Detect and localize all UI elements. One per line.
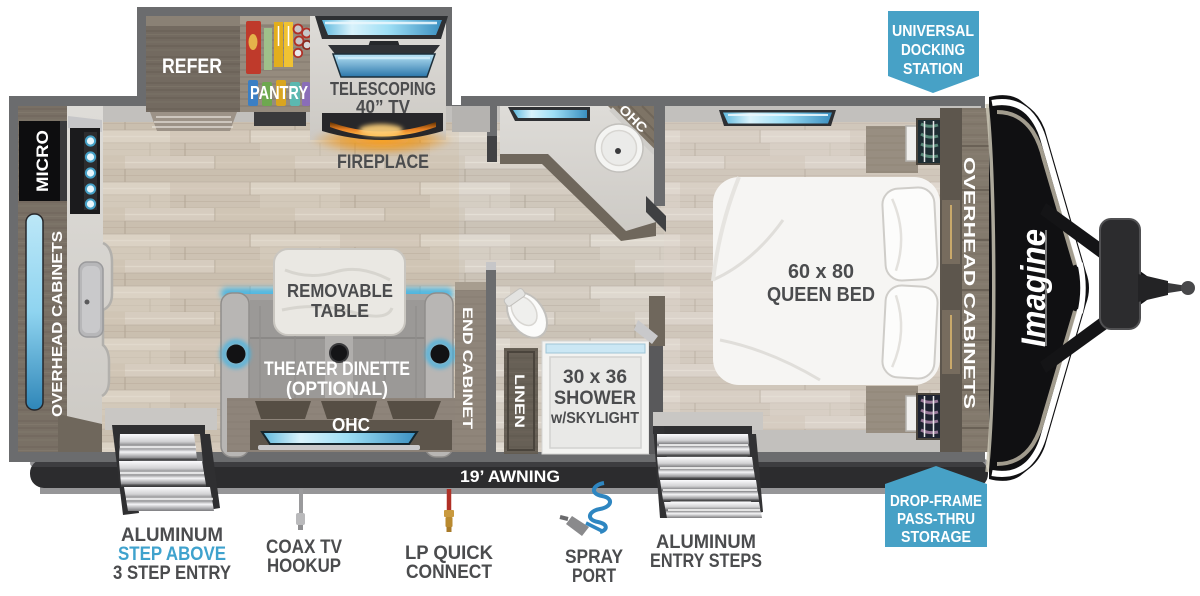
svg-text:UNIVERSAL: UNIVERSAL [892, 23, 974, 40]
svg-text:STATION: STATION [903, 61, 963, 78]
svg-text:END CABINET: END CABINET [460, 307, 476, 430]
svg-text:THEATER DINETTE: THEATER DINETTE [264, 359, 410, 380]
svg-text:DOCKING: DOCKING [901, 42, 965, 59]
svg-text:COAX TV: COAX TV [266, 537, 342, 558]
svg-text:HOOKUP: HOOKUP [267, 556, 341, 577]
svg-text:(OPTIONAL): (OPTIONAL) [286, 379, 388, 400]
svg-text:ALUMINUM: ALUMINUM [121, 525, 223, 546]
svg-text:Imagine: Imagine [1015, 229, 1053, 347]
svg-text:OHC: OHC [332, 415, 370, 435]
svg-text:DROP-FRAME: DROP-FRAME [890, 493, 982, 510]
svg-text:SHOWER: SHOWER [554, 388, 636, 409]
svg-text:ALUMINUM: ALUMINUM [656, 532, 756, 553]
svg-text:PANTRY: PANTRY [250, 83, 308, 103]
svg-text:REFER: REFER [162, 55, 222, 78]
svg-text:QUEEN BED: QUEEN BED [767, 284, 875, 306]
svg-text:19’ AWNING: 19’ AWNING [460, 467, 560, 486]
svg-text:PORT: PORT [572, 566, 616, 587]
svg-text:3 STEP ENTRY: 3 STEP ENTRY [113, 563, 231, 584]
svg-text:LP QUICK: LP QUICK [405, 543, 493, 564]
svg-text:30 x 36: 30 x 36 [563, 367, 627, 388]
svg-text:SPRAY: SPRAY [565, 547, 623, 568]
svg-text:REMOVABLE: REMOVABLE [287, 281, 393, 301]
svg-text:TABLE: TABLE [311, 301, 369, 321]
svg-text:OVERHEAD CABINETS: OVERHEAD CABINETS [49, 231, 66, 417]
svg-text:OVERHEAD CABINETS: OVERHEAD CABINETS [960, 157, 977, 409]
svg-text:CONNECT: CONNECT [406, 562, 492, 583]
svg-text:TELESCOPING: TELESCOPING [330, 79, 436, 99]
svg-text:w/SKYLIGHT: w/SKYLIGHT [550, 410, 639, 427]
svg-text:MICRO: MICRO [33, 130, 52, 192]
svg-text:PASS-THRU: PASS-THRU [897, 511, 975, 528]
svg-text:ENTRY STEPS: ENTRY STEPS [650, 551, 762, 572]
svg-text:STEP ABOVE: STEP ABOVE [118, 544, 226, 565]
svg-text:60 x 80: 60 x 80 [788, 261, 854, 283]
svg-text:FIREPLACE: FIREPLACE [337, 152, 429, 173]
svg-text:LINEN: LINEN [512, 374, 528, 428]
svg-text:STORAGE: STORAGE [901, 529, 971, 546]
